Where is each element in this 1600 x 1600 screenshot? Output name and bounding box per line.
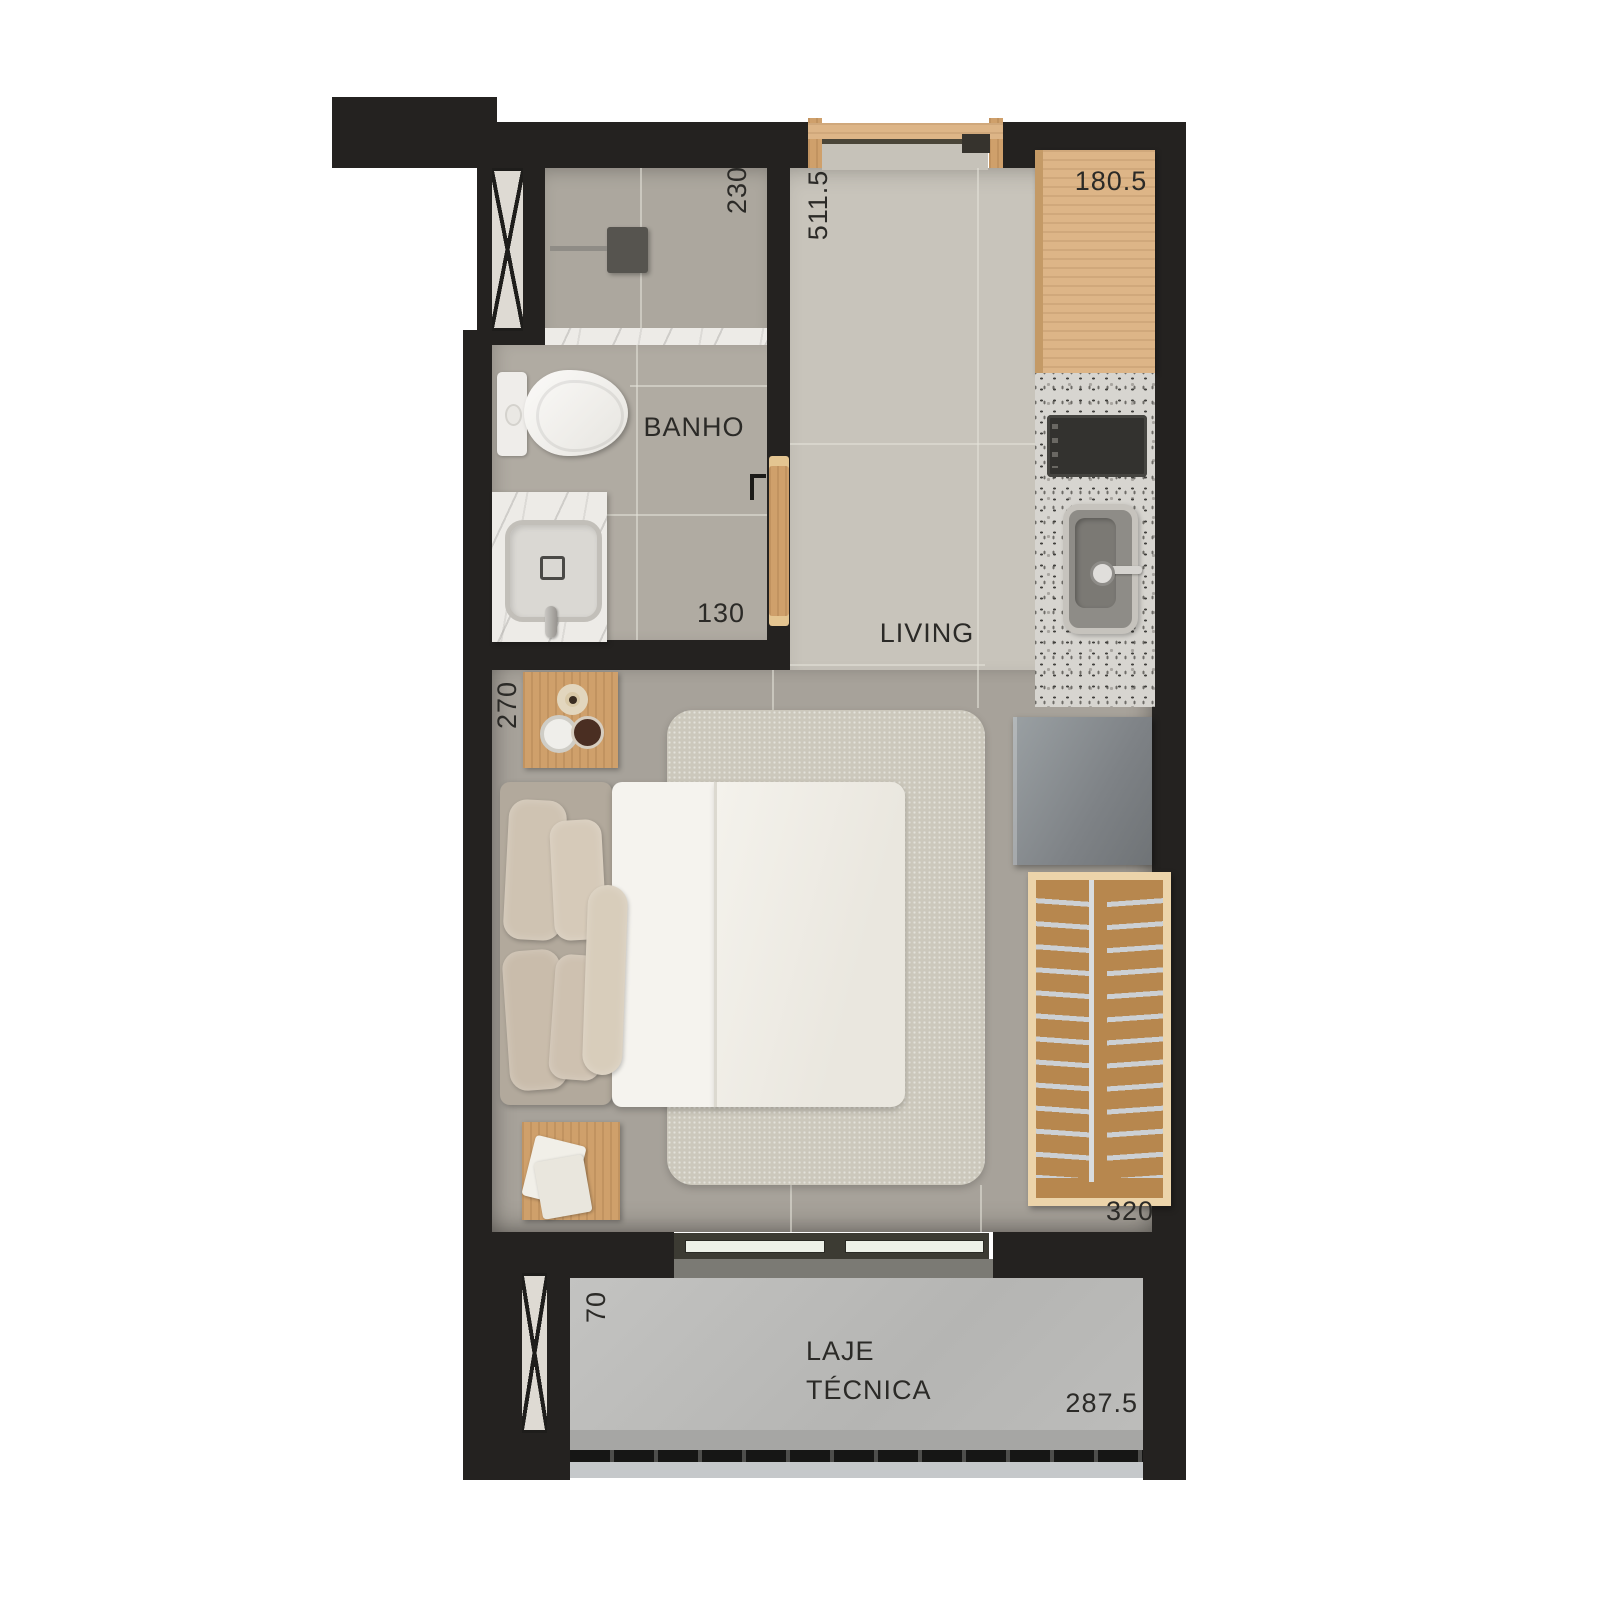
wall-top-middle [617, 122, 808, 168]
grout-line [980, 1185, 982, 1232]
slab-window-pane-left [685, 1240, 825, 1253]
bed-fold-line [714, 782, 717, 1107]
shower-head [607, 227, 648, 273]
books-top [533, 1154, 592, 1220]
room-label-technical-slab: LAJE TÉCNICA [806, 1332, 981, 1410]
grout-line [636, 345, 638, 640]
dimension-320: 320 [1014, 1194, 1154, 1229]
dimension-230: 230 [722, 130, 752, 250]
bolster-pillow [582, 884, 629, 1075]
wardrobe [1028, 872, 1171, 1206]
wardrobe-hangers-left [1036, 884, 1092, 1178]
bathroom-door-handle-bar [750, 474, 766, 478]
decor-cup [571, 716, 604, 749]
slab-window-pane-right [845, 1240, 984, 1253]
dimension-70: 70 [581, 1247, 611, 1367]
shower-marble-sill [545, 328, 767, 345]
slab-window-recess [674, 1259, 993, 1278]
grout-line [790, 443, 1035, 445]
louver-grille [570, 1450, 1143, 1462]
grout-line [790, 1185, 792, 1232]
fridge [1013, 717, 1152, 865]
room-label-living: LIVING [847, 616, 1007, 651]
bed-sheet [612, 782, 718, 1107]
floor-plan: BANHO LIVING LAJE TÉCNICA 230 511.5 180.… [0, 0, 1600, 1600]
wall-shaft-right [523, 168, 545, 330]
wall-bottom-left-block [463, 1278, 570, 1480]
vent-shaft-top [492, 168, 523, 331]
dimension-287-5: 287.5 [998, 1386, 1138, 1421]
slab-outer-strip [570, 1462, 1143, 1478]
wardrobe-hangers-right [1107, 884, 1163, 1178]
wall-top-left-block [332, 97, 497, 168]
kitchen-faucet-base [1090, 561, 1115, 586]
cooktop-controls [1052, 424, 1058, 468]
bathroom-door [769, 456, 789, 626]
dimension-180-5: 180.5 [1041, 164, 1181, 199]
dimension-130: 130 [671, 596, 771, 631]
decor-plate-center [569, 696, 577, 704]
wardrobe-rail [1089, 880, 1094, 1182]
grout-line [630, 385, 767, 387]
shower-arm [550, 246, 607, 251]
toilet-flush-button [505, 404, 522, 426]
vent-shaft-bottom [522, 1273, 547, 1433]
dimension-270: 270 [492, 645, 522, 765]
grout-line [790, 664, 985, 666]
wall-bottom-band-right [993, 1232, 1186, 1278]
wall-left-bathroom [463, 330, 492, 670]
wall-bottom-right-block [1143, 1278, 1186, 1480]
wall-top-left [497, 122, 617, 168]
wall-bottom-band-left [463, 1232, 674, 1278]
vanity-faucet [545, 606, 557, 638]
technical-slab-edge [570, 1430, 1143, 1450]
balcony-door-handle [962, 134, 990, 153]
vanity-drain [540, 556, 565, 580]
wall-shaft-left [477, 168, 492, 330]
cooktop [1047, 415, 1147, 477]
dimension-511-5: 511.5 [803, 145, 833, 265]
grout-line [772, 668, 774, 712]
bed-duvet [716, 782, 905, 1107]
wall-left-bedroom [463, 670, 492, 1232]
room-label-bathroom: BANHO [614, 410, 774, 445]
